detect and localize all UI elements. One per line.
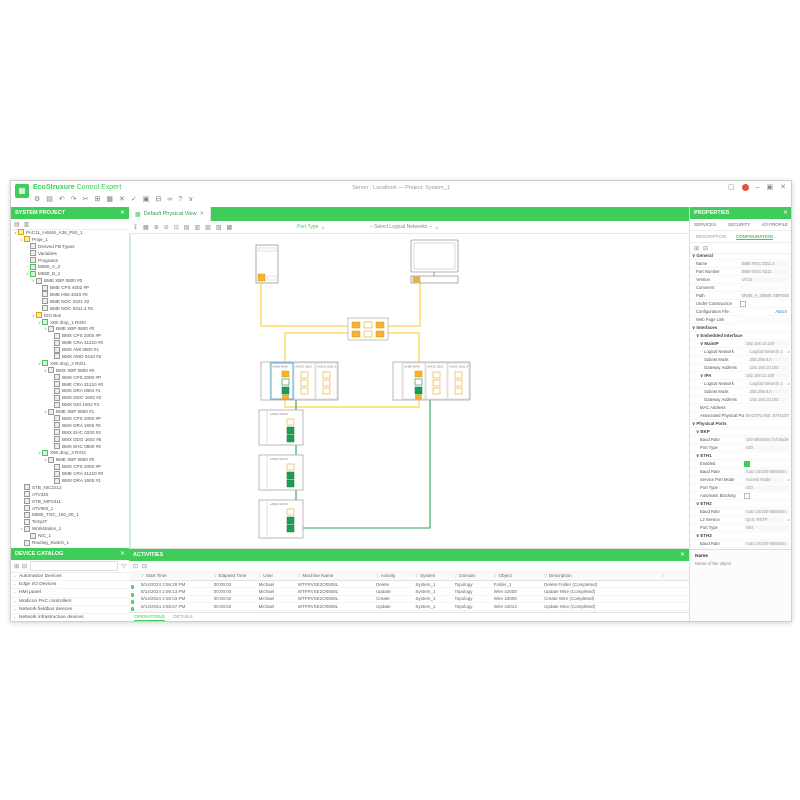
property-label: Name: [690, 261, 740, 266]
column-header[interactable]: ▽Elapsed Time: [214, 573, 259, 578]
filter-icon[interactable]: ▽: [455, 574, 458, 578]
column-header-label: Machine Name: [302, 573, 333, 578]
property-row[interactable]: Enabled: [690, 460, 792, 468]
tab-security[interactable]: SECURITY: [728, 222, 750, 227]
noc-port[interactable]: [323, 388, 330, 394]
property-label: Configuration File: [690, 309, 740, 314]
property-row[interactable]: Gateway Address192.168.10.100: [690, 396, 792, 404]
property-label: L2 Service: [690, 517, 744, 522]
property-checkbox[interactable]: [740, 301, 746, 307]
tree-item[interactable]: BME CRA 31210 #0: [11, 339, 129, 346]
filter-icon[interactable]: ▽: [259, 574, 262, 578]
tree-item[interactable]: BME CRA 31210 #0: [11, 381, 129, 388]
attach-link[interactable]: Attach: [740, 309, 789, 315]
tree-item[interactable]: ATV340: [11, 491, 129, 498]
close-icon[interactable]: ✕: [680, 549, 685, 561]
tree-item-label: ATV950_1: [32, 506, 53, 511]
rio-drop-2[interactable]: eCRA 31210: [259, 455, 303, 490]
export-view-icon[interactable]: ↧: [133, 224, 138, 231]
topology-canvas[interactable]: eH58 4040 eNOC 0321 eNOC 0311.4: [129, 234, 691, 548]
property-dropdown[interactable]: QoS, RSTP: [744, 517, 784, 523]
property-value[interactable]: Auto 10/100 Mbits/sec: [744, 541, 789, 547]
server-eth-port[interactable]: [258, 274, 265, 281]
property-row[interactable]: Baud RateAuto 10/100 Mbits/sec: [690, 540, 792, 548]
tab-i-o-profile[interactable]: I/O PROFILE: [762, 222, 788, 227]
collapse-sections-icon[interactable]: ⊟: [703, 245, 708, 252]
cpu-rio-port[interactable]: [415, 379, 422, 385]
cut-icon[interactable]: ✂: [83, 195, 89, 205]
property-row[interactable]: Port TypeSIO: [690, 484, 792, 492]
property-value[interactable]: NIO: [744, 525, 789, 531]
tree-item[interactable]: BME NOC 0321 #2: [11, 298, 129, 305]
tree-item[interactable]: STB_NIC2212: [11, 484, 129, 491]
property-label: Gateway Address: [690, 365, 748, 370]
noc-port[interactable]: [301, 388, 308, 394]
tree-item[interactable]: ∨BME XBP 0800 #1: [11, 408, 129, 415]
property-value[interactable]: V0.01: [740, 277, 789, 283]
tab-services[interactable]: SERVICES: [694, 222, 716, 227]
record-indicator[interactable]: ●: [742, 184, 749, 191]
activity-row[interactable]: ✓8/14/2024 2:56:13 PM00:00:00MichaelWTFR…: [129, 588, 689, 595]
property-section[interactable]: ∨ BKP: [690, 428, 792, 436]
wire-drop3-to-rack-b[interactable]: [294, 390, 430, 528]
tree-item[interactable]: ∨BMX XBP 0800 #0: [11, 367, 129, 374]
tree-item[interactable]: M580_TOC_160_00_1: [11, 512, 129, 519]
tree-item-label: BME H58 4040 #0: [50, 292, 88, 297]
filter-icon[interactable]: ▽: [494, 574, 497, 578]
tree-item[interactable]: BMX DDO 1602 #5: [11, 436, 129, 443]
tree-item[interactable]: ∨X80 drop_2 RIO1: [11, 360, 129, 367]
property-row[interactable]: Automatic Blocking: [690, 492, 792, 500]
tree-item[interactable]: Variables: [11, 250, 129, 257]
tree-item[interactable]: BMX DRA 1605 #1: [11, 477, 129, 484]
activity-cell: Michael: [259, 589, 298, 594]
property-value[interactable]: Auto 10/100 Mbits/sec: [744, 509, 789, 515]
close-icon[interactable]: ✕: [199, 211, 204, 217]
property-row[interactable]: Associated Physical PortsBACKPLANE, ETH1…: [690, 412, 792, 420]
tree-item[interactable]: ATV950_1: [11, 505, 129, 512]
tree-item[interactable]: ∨Workstation_1: [11, 525, 129, 532]
property-value[interactable]: BME NOC 0311.4: [740, 261, 789, 267]
wire-workstation-to-switch[interactable]: [388, 282, 420, 326]
distribute-icon[interactable]: ▩: [226, 224, 232, 231]
switch-port[interactable]: [376, 331, 384, 337]
refresh-icon[interactable]: ∞: [167, 195, 172, 205]
switch-port[interactable]: [352, 322, 360, 328]
property-row[interactable]: MAC Address: [690, 404, 792, 412]
node-icon: [48, 457, 54, 463]
property-section[interactable]: ∨ Physical Ports: [690, 420, 792, 428]
node-icon: [36, 312, 42, 318]
property-checkbox[interactable]: [744, 461, 750, 467]
build-icon[interactable]: ▣: [143, 195, 150, 205]
property-row[interactable]: Service Port ModeAccess Mode∨: [690, 476, 792, 484]
property-label: Logical Network: [690, 349, 748, 354]
noc-port[interactable]: [433, 372, 440, 378]
network-switch-device[interactable]: [348, 318, 388, 340]
node-icon: [24, 540, 30, 546]
switch-port[interactable]: [364, 322, 372, 328]
footer-tab-operations[interactable]: OPERATIONS: [134, 615, 165, 621]
activity-row[interactable]: ✓8/14/2024 2:55:57 PM00:00:02MichaelWTFR…: [129, 603, 689, 610]
more-icon[interactable]: ∨: [188, 195, 193, 205]
workstation-eth-port[interactable]: [413, 277, 420, 282]
workstation-device[interactable]: [411, 240, 458, 283]
cpu-eth-port[interactable]: [283, 395, 289, 399]
zoom-fit-icon[interactable]: ⊡: [174, 224, 179, 231]
grid-icon[interactable]: ▦: [143, 224, 149, 231]
property-row[interactable]: Part NumberBME-NOC-0311: [690, 268, 792, 276]
tree-item[interactable]: BME CPS 4002 #P: [11, 284, 129, 291]
close-icon[interactable]: ✕: [780, 183, 786, 191]
activity-row[interactable]: ✓8/14/2024 2:56:03 PM00:00:02MichaelWTFR…: [129, 596, 689, 603]
paste-icon[interactable]: ▦: [106, 195, 113, 205]
tree-item[interactable]: ›Programs: [11, 257, 129, 264]
drop-rio-port[interactable]: [287, 427, 294, 434]
zoom-out-icon[interactable]: ⊖: [164, 224, 169, 231]
tree-item[interactable]: Routing_Switch_1: [11, 539, 129, 546]
module-label: eH58 4040: [273, 365, 288, 369]
noc-port[interactable]: [323, 380, 330, 386]
noc-port[interactable]: [455, 380, 462, 386]
property-value[interactable]: SIO: [744, 445, 789, 451]
tree-item[interactable]: STB_NIP2311: [11, 498, 129, 505]
expand-all-icon[interactable]: ▤: [14, 221, 20, 228]
tree-item[interactable]: BMX DDI 1602 #3: [11, 401, 129, 408]
tree-item-label: X80 drop_2 RIO1: [50, 361, 86, 366]
property-value[interactable]: [740, 317, 789, 323]
redo-icon[interactable]: ↷: [71, 195, 77, 205]
tab-default-physical-view[interactable]: ▦ Default Physical View ✕: [129, 207, 211, 221]
column-header[interactable]: ▽Description: [544, 573, 662, 578]
drop-rio-port[interactable]: [287, 472, 294, 479]
filter-icon[interactable]: ▽: [376, 574, 379, 578]
noc-port[interactable]: [433, 388, 440, 394]
drop-rio-port[interactable]: [287, 517, 294, 524]
cpu-eth-port[interactable]: [416, 395, 422, 399]
tree-item[interactable]: BMX DRA 0804 #1: [11, 387, 129, 394]
tree-item[interactable]: BMX DDO 1602 #2: [11, 394, 129, 401]
property-row[interactable]: PathM580_A_2\BME XBP0800: [690, 292, 792, 300]
property-section[interactable]: ∨ ETH2: [690, 500, 792, 508]
drop-service-port[interactable]: [287, 464, 294, 470]
maximize-icon[interactable]: ▣: [767, 183, 774, 191]
node-icon: [24, 236, 30, 242]
column-header[interactable]: ▽Machine Name: [298, 573, 376, 578]
rio-drop-3[interactable]: eCRA 31210: [259, 500, 303, 538]
module-label: eNOC 0311.4: [318, 365, 337, 369]
node-icon: [42, 305, 48, 311]
property-section[interactable]: ∨ General: [690, 252, 792, 260]
noc-port[interactable]: [455, 388, 462, 394]
tree-item[interactable]: ∨BME XBP 0800 #0: [11, 277, 129, 284]
property-row[interactable]: Baud RateAuto 10/100 Mbits/sec: [690, 508, 792, 516]
node-icon: [30, 533, 36, 539]
left-column: SYSTEM PROJECT ✕ ▤▥ ∨PAC11_H4848_A38_P82…: [11, 207, 130, 621]
tree-item[interactable]: TeSysT: [11, 518, 129, 525]
footer-tab-details[interactable]: DETAILS: [173, 615, 193, 620]
cpu-rio-port[interactable]: [282, 379, 289, 385]
noc-port[interactable]: [455, 372, 462, 378]
subtab-description[interactable]: DESCRIPTION: [696, 234, 726, 239]
canvas-toolbar-icons: ↧▦⊕⊖⊡▤▥▧▨▩: [133, 224, 232, 231]
tree-item[interactable]: BME NOC 0311.4 #3: [11, 305, 129, 312]
property-dropdown[interactable]: Access Mode: [744, 477, 784, 483]
catalog-item[interactable]: ›HMI panel: [11, 589, 129, 597]
property-section[interactable]: ∨ ETH1: [690, 452, 792, 460]
layout-icon[interactable]: ▢: [728, 183, 735, 191]
property-label: Path: [690, 293, 740, 298]
property-section[interactable]: ∨ Interfaces: [690, 324, 792, 332]
align-left-icon[interactable]: ▧: [205, 224, 211, 231]
wire-server-to-switch[interactable]: [261, 282, 348, 326]
catalog-search-row: ⊞ ⊟ ▽: [11, 560, 129, 573]
tree-item[interactable]: BMX EHC 0200 #4: [11, 429, 129, 436]
collapse-all-icon[interactable]: ▥: [24, 221, 30, 228]
activities-footer-tabs: OPERATIONSDETAILS: [129, 612, 689, 622]
section-value[interactable]: 192.168.11.100: [744, 373, 789, 379]
activity-cell: Wire 42014: [494, 604, 544, 609]
cpu-eth-port[interactable]: [415, 371, 422, 377]
rack-m580-b[interactable]: eH58 4040 eNOC 0321 eNOC 0311.4: [393, 362, 470, 400]
zoom-in-icon[interactable]: ⊕: [154, 224, 159, 231]
tree-item[interactable]: ∨X80 drop_3 RIO2: [11, 450, 129, 457]
app-brand: EcoStruxure Control Expert: [33, 184, 121, 191]
cpu-eth-port[interactable]: [282, 371, 289, 377]
view-tab-label: Default Physical View: [144, 211, 197, 217]
drop-service-port[interactable]: [287, 509, 294, 515]
copy-icon[interactable]: ⊞: [95, 195, 101, 205]
property-row[interactable]: Comment: [690, 284, 792, 292]
tree-item[interactable]: ∨Proje_1: [11, 236, 129, 243]
property-row[interactable]: Port TypeNIO: [690, 524, 792, 532]
node-icon: [54, 464, 60, 470]
drop-rio-port[interactable]: [287, 525, 294, 532]
tree-item-label: BME NOC 0311.4 #3: [50, 306, 93, 311]
drop-service-port[interactable]: [287, 419, 294, 425]
property-section[interactable]: ∨ ETH3: [690, 532, 792, 540]
property-label: Baud Rate: [690, 509, 744, 514]
close-icon[interactable]: ✕: [120, 207, 125, 219]
tree-item[interactable]: ∨M580_B_2: [11, 270, 129, 277]
activity-cell: Update: [376, 604, 415, 609]
section-label: ∨ BKP: [690, 429, 740, 435]
catalog-search-input[interactable]: [30, 561, 118, 571]
tree-item-label: EIO Bus: [44, 313, 61, 318]
activity-cell: WTFRVSE2O0508L: [298, 582, 376, 587]
property-value[interactable]: SIO: [744, 485, 789, 491]
property-value[interactable]: M580_A_2\BME XBP0800: [740, 293, 789, 299]
tree-item-label: BME CRA 31210 #0: [62, 340, 103, 345]
tree-item[interactable]: ∨BME XBP 0800 #0: [11, 456, 129, 463]
subtab-configuration[interactable]: CONFIGURATION: [736, 234, 773, 240]
column-header[interactable]: ▽Domain: [455, 573, 494, 578]
tree-item[interactable]: BMX AMI 0800 #1: [11, 346, 129, 353]
import-icon[interactable]: ⊞: [14, 563, 19, 570]
property-value[interactable]: [744, 405, 789, 411]
export-log-icon[interactable]: ⊡: [133, 563, 138, 570]
property-checkbox[interactable]: [744, 493, 750, 499]
minimize-icon[interactable]: –: [756, 184, 760, 191]
chevron-down-icon: ∨: [321, 225, 324, 230]
node-icon: [30, 264, 36, 270]
property-row[interactable]: Logical NetworkLogical Network 1∨: [690, 380, 792, 388]
property-value[interactable]: [740, 285, 789, 291]
column-header[interactable]: ▽: [662, 574, 665, 578]
column-header[interactable]: ▽System: [415, 573, 454, 578]
rio-drop-1[interactable]: eCRA 31210: [259, 410, 303, 445]
property-value[interactable]: BACKPLANE, ETH1/ETH2: [744, 413, 789, 419]
activity-cell: System_1: [415, 596, 454, 601]
property-dropdown[interactable]: Logical Network 1: [748, 381, 784, 387]
property-row[interactable]: Baud RateAuto 10/100 Mbits/sec: [690, 468, 792, 476]
cpu-rio-port[interactable]: [415, 387, 422, 394]
column-header[interactable]: ▽User: [259, 573, 298, 578]
expand-sections-icon[interactable]: ⊞: [694, 245, 699, 252]
property-row[interactable]: Web Page Link: [690, 316, 792, 324]
tree-item[interactable]: BMX CPS 2000 #P: [11, 332, 129, 339]
property-value[interactable]: 192.168.10.100: [748, 365, 789, 371]
property-row[interactable]: Subnet Mask255.255.0.0: [690, 356, 792, 364]
column-header[interactable]: ▽Object: [494, 573, 544, 578]
tree-item[interactable]: BME CRA 31210 #0: [11, 470, 129, 477]
tree-item[interactable]: ∨PAC11_H4848_A38_P82_1: [11, 229, 129, 236]
property-dropdown[interactable]: Logical Network 1: [748, 349, 784, 355]
delete-icon[interactable]: ✕: [119, 195, 125, 205]
tree-item-label: BME CRA 31210 #0: [62, 382, 103, 387]
activities-table-header: ▽Start Time▽Elapsed Time▽User▽Machine Na…: [129, 571, 689, 581]
window-controls: ▢●–▣✕: [728, 183, 786, 191]
catalog-list: ›Automation Devices›Edge I/O Devices›HMI…: [11, 573, 129, 622]
property-section[interactable]: ∨ IPA192.168.11.100: [690, 372, 792, 380]
property-value[interactable]: BME-NOC-0311: [740, 269, 789, 275]
property-row[interactable]: L2 ServiceQoS, RSTP∨: [690, 516, 792, 524]
tree-item[interactable]: ∨X80 drop_1 RIO0: [11, 319, 129, 326]
column-header[interactable]: ▽Start Time: [141, 573, 214, 578]
device-catalog-header: DEVICE CATALOG ✕: [11, 548, 129, 560]
tree-item-label: BMX DRA 0804 #1: [62, 388, 101, 393]
noc-port[interactable]: [433, 380, 440, 386]
column-header[interactable]: ▽Activity: [376, 573, 415, 578]
tree-item[interactable]: NIC_1: [11, 532, 129, 539]
property-row[interactable]: Under Construction: [690, 300, 792, 308]
filter-icon[interactable]: ▽: [121, 563, 126, 570]
server-device[interactable]: [256, 245, 278, 283]
switch-port[interactable]: [364, 331, 372, 337]
noc-port[interactable]: [301, 380, 308, 386]
property-row[interactable]: Port TypeSIO: [690, 444, 792, 452]
property-value[interactable]: 100 Mbits/sec full duplex: [744, 437, 789, 443]
property-row[interactable]: VersionV0.01: [690, 276, 792, 284]
catalog-item[interactable]: ›Network fieldbus devices: [11, 606, 129, 614]
filter-icon[interactable]: ▽: [662, 574, 665, 578]
tree-item[interactable]: ∨BME XBP 0800 #0: [11, 325, 129, 332]
filter-icon[interactable]: ▽: [141, 574, 144, 578]
layout-vertical-icon[interactable]: ▥: [194, 224, 200, 231]
property-row[interactable]: Gateway Address192.168.10.100: [690, 364, 792, 372]
section-value[interactable]: 192.168.10.100: [744, 341, 789, 347]
filter-icon[interactable]: ▽: [544, 574, 547, 578]
tree-item[interactable]: BMX CPS 2000 #P: [11, 463, 129, 470]
catalog-item[interactable]: ›Modicon PAC controllers: [11, 598, 129, 606]
cpu-rio-port[interactable]: [282, 387, 289, 394]
property-value[interactable]: 255.255.0.0: [748, 357, 789, 363]
filter-icon[interactable]: ▽: [214, 574, 217, 578]
tree-item[interactable]: ∨EIO Bus: [11, 312, 129, 319]
close-icon[interactable]: ✕: [783, 207, 788, 219]
port-type-dropdown[interactable]: Port Type ∨: [297, 224, 324, 230]
settings-icon[interactable]: ⚙: [34, 195, 40, 205]
property-section[interactable]: ∨ Embedded Interface: [690, 332, 792, 340]
catalog-item[interactable]: ›Automation Devices: [11, 573, 129, 581]
switch-port[interactable]: [352, 331, 360, 337]
property-value[interactable]: Auto 10/100 Mbits/sec: [744, 469, 789, 475]
tree-item[interactable]: BMX EHC 0800 #6: [11, 443, 129, 450]
tree-item[interactable]: ›M580_A_2: [11, 263, 129, 270]
activity-row[interactable]: ✓8/14/2024 2:56:29 PM00:00:02MichaelWTFR…: [129, 581, 689, 588]
property-label: Under Construction: [690, 301, 740, 306]
property-row[interactable]: Configuration FileAttach: [690, 308, 792, 316]
switch-port[interactable]: [376, 322, 384, 328]
property-value[interactable]: 192.168.10.100: [748, 397, 789, 403]
undo-icon[interactable]: ↶: [59, 195, 65, 205]
catalog-item[interactable]: ›Network infrastructure devices: [11, 614, 129, 622]
catalog-item[interactable]: ›Edge I/O Devices: [11, 581, 129, 589]
property-value[interactable]: 255.255.0.0: [748, 389, 789, 395]
tree-item[interactable]: BMX CPS 2000 #P: [11, 415, 129, 422]
chevron-down-icon: ∨: [787, 381, 790, 386]
open-project-icon[interactable]: ▤: [46, 195, 53, 205]
tree-item[interactable]: BMX CPS 2000 #P: [11, 374, 129, 381]
property-section[interactable]: ∨ MainIP192.168.10.100: [690, 340, 792, 348]
tree-item[interactable]: BMX DRA 1605 #0: [11, 422, 129, 429]
property-label: Enabled: [690, 461, 744, 466]
node-icon: [54, 395, 60, 401]
noc-port[interactable]: [301, 372, 308, 378]
logical-network-select[interactable]: -- Select Logical Networks -- ∨: [369, 224, 438, 230]
print-icon[interactable]: ⊟: [155, 195, 161, 205]
validate-icon[interactable]: ✓: [131, 195, 137, 205]
node-icon: [30, 271, 36, 277]
filter-icon[interactable]: ▽: [415, 574, 418, 578]
drop-rio-port[interactable]: [287, 480, 294, 487]
filter-icon[interactable]: ▽: [298, 574, 301, 578]
tree-item-label: BME CPS 4002 #P: [50, 285, 89, 290]
layout-horizontal-icon[interactable]: ▤: [184, 224, 190, 231]
close-icon[interactable]: ✕: [120, 548, 125, 560]
section-label: ∨ ETH1: [690, 453, 740, 459]
tree-item[interactable]: ›Derived FB Types: [11, 243, 129, 250]
tree-item-label: BME XBP 0800 #0: [56, 457, 94, 462]
noc-port[interactable]: [323, 372, 330, 378]
property-row[interactable]: Baud Rate100 Mbits/sec full duplex: [690, 436, 792, 444]
rack-m580-a[interactable]: eH58 4040 eNOC 0321 eNOC 0311.4: [261, 362, 338, 400]
clear-log-icon[interactable]: ⊟: [142, 563, 147, 570]
rio-ring-wires[interactable]: [289, 390, 430, 528]
property-row[interactable]: Subnet Mask255.255.0.0: [690, 388, 792, 396]
tree-item[interactable]: BME H58 4040 #0: [11, 291, 129, 298]
drop-rio-port[interactable]: [287, 435, 294, 442]
property-row[interactable]: NameBME NOC 0311.4: [690, 260, 792, 268]
activity-cell: Wire 42008: [494, 589, 544, 594]
property-row[interactable]: Logical NetworkLogical Network 1∨: [690, 348, 792, 356]
tree-item-label: BMX AMI 0800 #1: [62, 347, 99, 352]
catalog-item-label: Modicon PAC controllers: [19, 599, 71, 604]
tree-item[interactable]: BMX AMO 0410 #2: [11, 353, 129, 360]
help-icon[interactable]: ?: [178, 195, 182, 205]
export-icon[interactable]: ⊟: [22, 563, 27, 570]
align-right-icon[interactable]: ▨: [216, 224, 222, 231]
